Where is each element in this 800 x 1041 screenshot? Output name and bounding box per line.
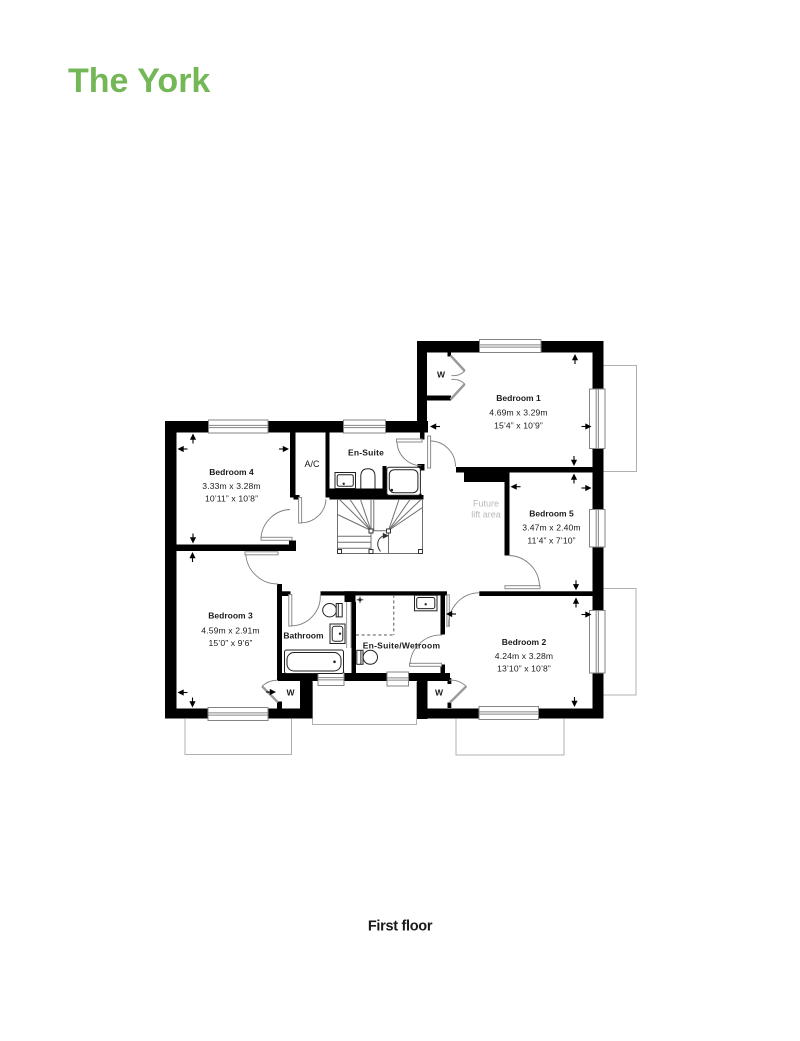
svg-text:First floor: First floor [368, 919, 433, 935]
svg-text:W: W [435, 688, 444, 698]
svg-text:Future: Future [473, 499, 499, 509]
svg-text:lift area: lift area [471, 510, 501, 520]
svg-text:Bedroom 2: Bedroom 2 [502, 637, 547, 647]
svg-text:10’11” x 10’8”: 10’11” x 10’8” [205, 494, 258, 504]
svg-text:4.69m x 3.29m: 4.69m x 3.29m [489, 408, 547, 418]
svg-text:3.47m x 2.40m: 3.47m x 2.40m [522, 523, 580, 533]
svg-text:Bedroom 3: Bedroom 3 [208, 611, 253, 621]
svg-text:A/C: A/C [304, 459, 320, 469]
svg-text:En-Suite/Wetroom: En-Suite/Wetroom [363, 641, 441, 651]
svg-text:4.59m x 2.91m: 4.59m x 2.91m [201, 626, 259, 636]
svg-text:W: W [437, 370, 446, 380]
svg-text:15’0” x 9’6”: 15’0” x 9’6” [209, 638, 253, 648]
svg-text:En-Suite: En-Suite [348, 448, 384, 458]
svg-text:4.24m x 3.28m: 4.24m x 3.28m [495, 651, 553, 661]
svg-text:15’4” x 10’9”: 15’4” x 10’9” [494, 421, 543, 431]
svg-text:Bedroom 5: Bedroom 5 [529, 509, 574, 519]
svg-text:11’4” x 7’10”: 11’4” x 7’10” [527, 536, 575, 546]
svg-text:Bedroom 1: Bedroom 1 [496, 393, 541, 403]
svg-text:The York: The York [68, 62, 210, 100]
svg-text:Bathroom: Bathroom [283, 631, 324, 641]
svg-text:W: W [286, 688, 295, 698]
svg-text:Bedroom 4: Bedroom 4 [209, 467, 254, 477]
svg-text:3.33m x 3.28m: 3.33m x 3.28m [202, 481, 260, 491]
svg-text:13’10” x 10’8”: 13’10” x 10’8” [497, 664, 551, 674]
